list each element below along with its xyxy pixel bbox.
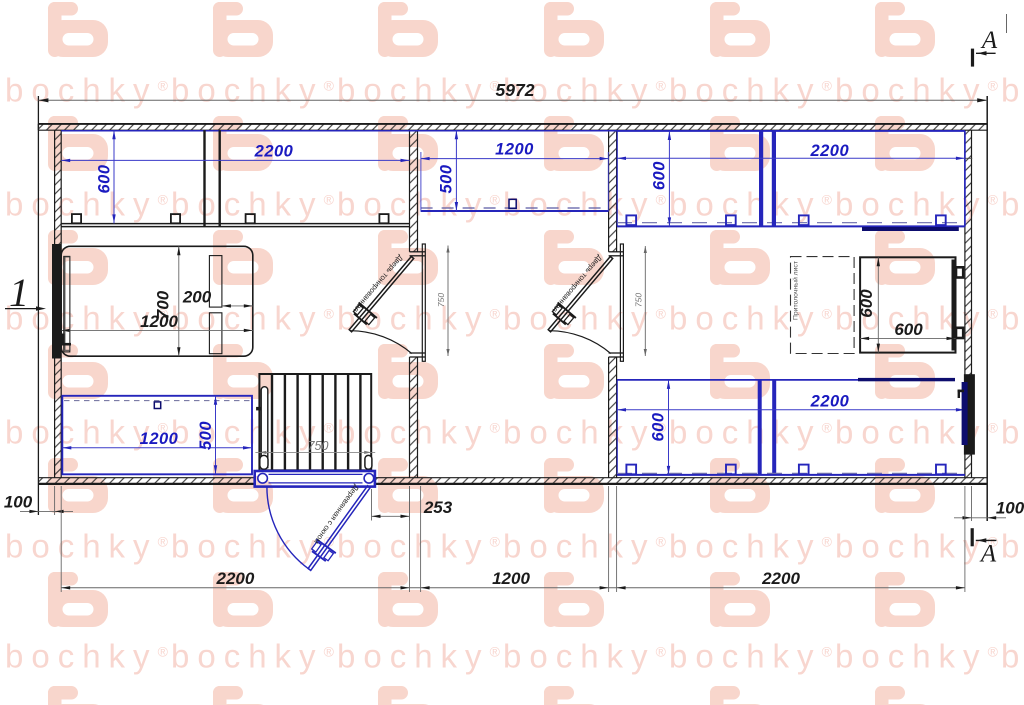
svg-text:5972: 5972 (496, 80, 535, 100)
svg-text:200: 200 (182, 288, 212, 307)
svg-text:bochky®: bochky® (835, 637, 999, 674)
svg-text:1200: 1200 (140, 430, 179, 448)
svg-text:bochky®: bochky® (1001, 413, 1024, 450)
svg-text:750: 750 (436, 293, 446, 307)
svg-text:500: 500 (438, 164, 456, 193)
svg-text:100: 100 (996, 499, 1024, 518)
svg-text:bochky®: bochky® (669, 413, 833, 450)
svg-text:bochky®: bochky® (5, 527, 169, 564)
svg-text:bochky®: bochky® (1001, 527, 1024, 564)
svg-text:bochky®: bochky® (1001, 299, 1024, 336)
svg-text:1200: 1200 (492, 569, 530, 588)
svg-text:bochky®: bochky® (171, 185, 335, 222)
svg-text:100: 100 (4, 493, 33, 512)
svg-text:1200: 1200 (495, 141, 534, 159)
svg-text:bochky®: bochky® (669, 637, 833, 674)
svg-text:600: 600 (96, 164, 114, 193)
svg-text:bochky®: bochky® (503, 185, 667, 222)
svg-text:bochky®: bochky® (171, 71, 335, 108)
svg-text:600: 600 (857, 289, 876, 318)
svg-text:600: 600 (650, 412, 668, 441)
svg-text:bochky®: bochky® (5, 637, 169, 674)
svg-text:bochky®: bochky® (1001, 185, 1024, 222)
svg-text:bochky®: bochky® (503, 527, 667, 564)
svg-text:A: A (980, 27, 998, 54)
svg-text:2200: 2200 (810, 393, 850, 411)
svg-text:600: 600 (651, 161, 669, 190)
svg-text:500: 500 (197, 421, 215, 450)
svg-text:bochky®: bochky® (5, 185, 169, 222)
svg-text:2200: 2200 (809, 142, 849, 160)
svg-text:bochky®: bochky® (337, 71, 501, 108)
svg-text:bochky®: bochky® (669, 71, 833, 108)
svg-text:1200: 1200 (140, 312, 178, 331)
svg-text:bochky®: bochky® (1001, 71, 1024, 108)
svg-text:bochky®: bochky® (503, 637, 667, 674)
svg-text:bochky®: bochky® (337, 185, 501, 222)
svg-text:bochky®: bochky® (171, 527, 335, 564)
svg-text:750: 750 (308, 439, 329, 453)
svg-text:bochky®: bochky® (835, 527, 999, 564)
svg-text:2200: 2200 (761, 569, 800, 588)
svg-text:bochky®: bochky® (835, 71, 999, 108)
svg-text:750: 750 (633, 293, 643, 307)
svg-text:bochky®: bochky® (171, 637, 335, 674)
svg-text:bochky®: bochky® (669, 527, 833, 564)
svg-text:Притолочный лист: Притолочный лист (792, 261, 800, 320)
svg-text:600: 600 (894, 320, 923, 339)
svg-text:253: 253 (423, 498, 453, 517)
svg-text:bochky®: bochky® (669, 299, 833, 336)
svg-text:bochky®: bochky® (337, 527, 501, 564)
svg-text:bochky®: bochky® (1001, 637, 1024, 674)
svg-text:2200: 2200 (254, 143, 294, 161)
svg-text:bochky®: bochky® (337, 637, 501, 674)
svg-text:bochky®: bochky® (503, 413, 667, 450)
svg-text:2200: 2200 (215, 569, 254, 588)
svg-text:bochky®: bochky® (835, 185, 999, 222)
svg-text:A: A (979, 541, 997, 568)
svg-text:bochky®: bochky® (5, 71, 169, 108)
